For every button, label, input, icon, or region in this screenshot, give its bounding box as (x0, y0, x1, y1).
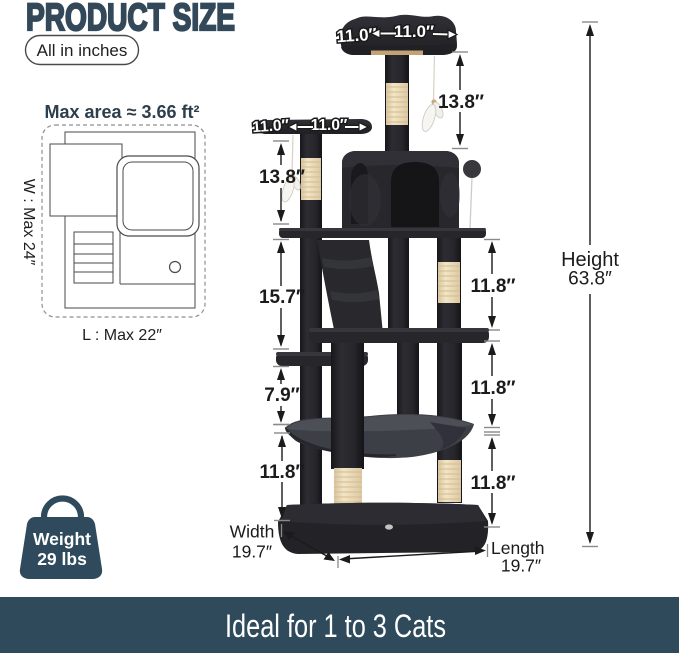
svg-text:Ideal for 1 to 3 Cats: Ideal for 1 to 3 Cats (225, 608, 446, 644)
svg-text:19.7″: 19.7″ (232, 542, 272, 562)
svg-text:11.0″: 11.0″ (394, 22, 434, 41)
svg-text:11.0″: 11.0″ (336, 25, 378, 47)
svg-text:13.8″: 13.8″ (259, 167, 305, 188)
svg-text:All in inches: All in inches (37, 41, 128, 60)
svg-text:Weight: Weight (33, 529, 91, 549)
svg-text:19.7″: 19.7″ (501, 556, 541, 576)
svg-text:11.0″: 11.0″ (311, 117, 348, 134)
svg-text:L : Max 22″: L : Max 22″ (82, 327, 162, 344)
svg-text:29 lbs: 29 lbs (37, 549, 87, 569)
svg-text:Width: Width (230, 522, 275, 542)
svg-text:11.0″: 11.0″ (252, 117, 290, 137)
svg-text:11.8″: 11.8″ (259, 462, 304, 483)
svg-text:13.8″: 13.8″ (438, 92, 484, 113)
svg-text:11.8″: 11.8″ (470, 378, 515, 399)
svg-text:7.9″: 7.9″ (264, 385, 300, 406)
svg-text:15.7″: 15.7″ (259, 287, 305, 308)
svg-text:W : Max 24″: W : Max 24″ (20, 179, 37, 266)
svg-text:11.8″: 11.8″ (470, 276, 515, 297)
svg-text:63.8″: 63.8″ (568, 269, 612, 290)
svg-text:11.8″: 11.8″ (470, 473, 515, 494)
svg-text:Max area ≈ 3.66 ft²: Max area ≈ 3.66 ft² (45, 102, 200, 122)
svg-text:PRODUCT SIZE: PRODUCT SIZE (26, 0, 235, 39)
